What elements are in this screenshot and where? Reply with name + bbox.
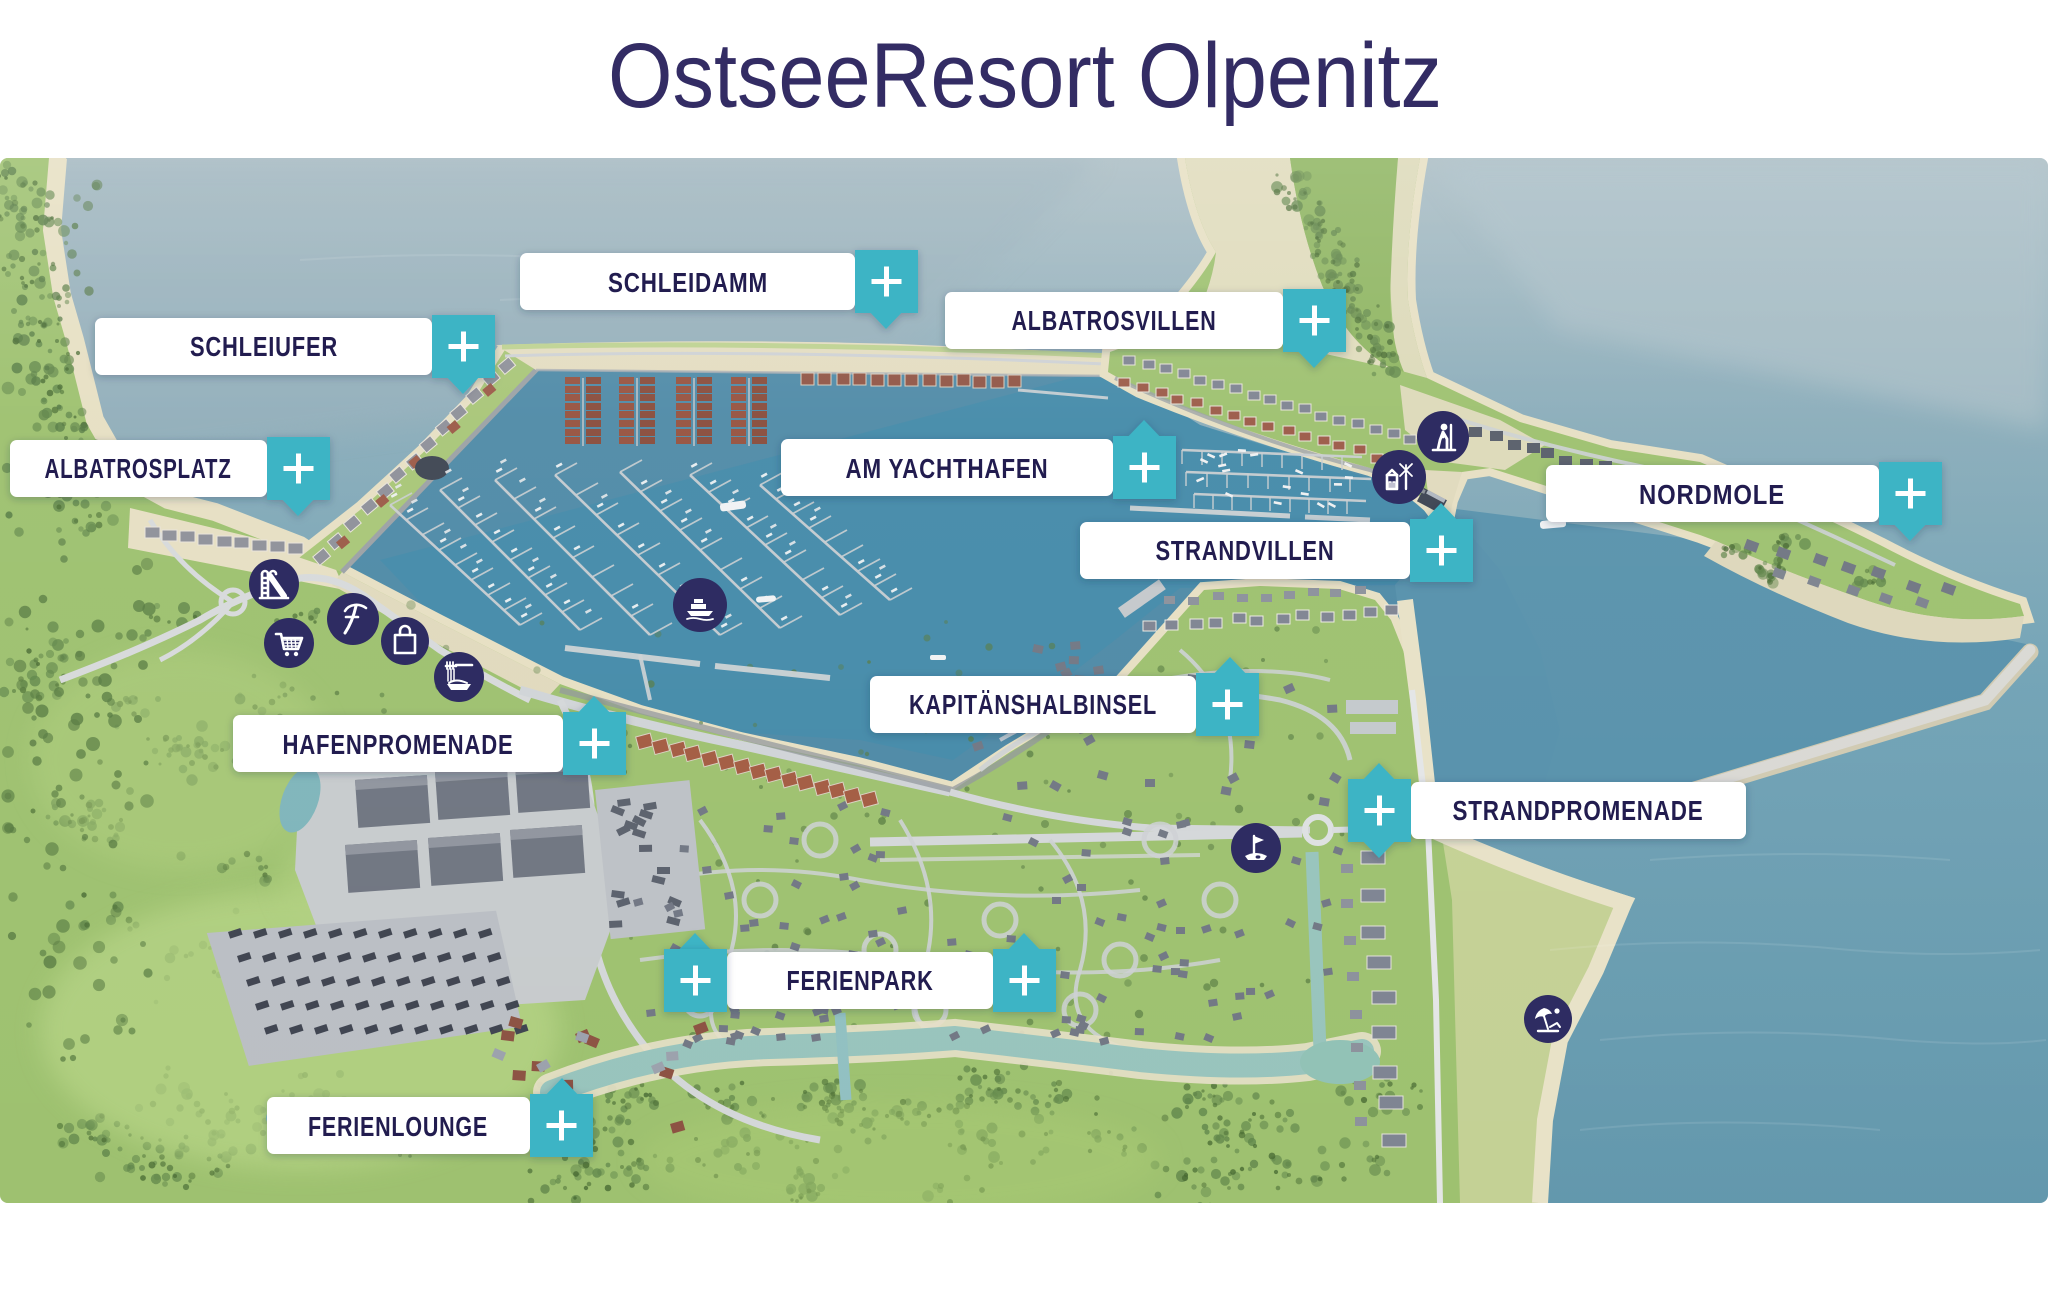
svg-text:STRANDVILLEN: STRANDVILLEN bbox=[1156, 535, 1335, 566]
svg-text:KAPITÄNSHALBINSEL: KAPITÄNSHALBINSEL bbox=[909, 689, 1157, 720]
svg-text:HAFENPROMENADE: HAFENPROMENADE bbox=[283, 729, 514, 760]
svg-text:FERIENLOUNGE: FERIENLOUNGE bbox=[308, 1111, 488, 1142]
svg-text:STRANDPROMENADE: STRANDPROMENADE bbox=[1453, 795, 1704, 826]
svg-text:AM YACHTHAFEN: AM YACHTHAFEN bbox=[846, 453, 1049, 484]
svg-text:ALBATROSPLATZ: ALBATROSPLATZ bbox=[45, 453, 232, 484]
svg-text:OstseeResort Olpenitz: OstseeResort Olpenitz bbox=[608, 25, 1442, 127]
svg-text:ALBATROSVILLEN: ALBATROSVILLEN bbox=[1012, 305, 1217, 336]
svg-text:NORDMOLE: NORDMOLE bbox=[1639, 479, 1785, 510]
svg-text:SCHLEIDAMM: SCHLEIDAMM bbox=[608, 267, 768, 298]
svg-text:FERIENPARK: FERIENPARK bbox=[787, 965, 934, 996]
svg-text:SCHLEIUFER: SCHLEIUFER bbox=[190, 331, 338, 362]
